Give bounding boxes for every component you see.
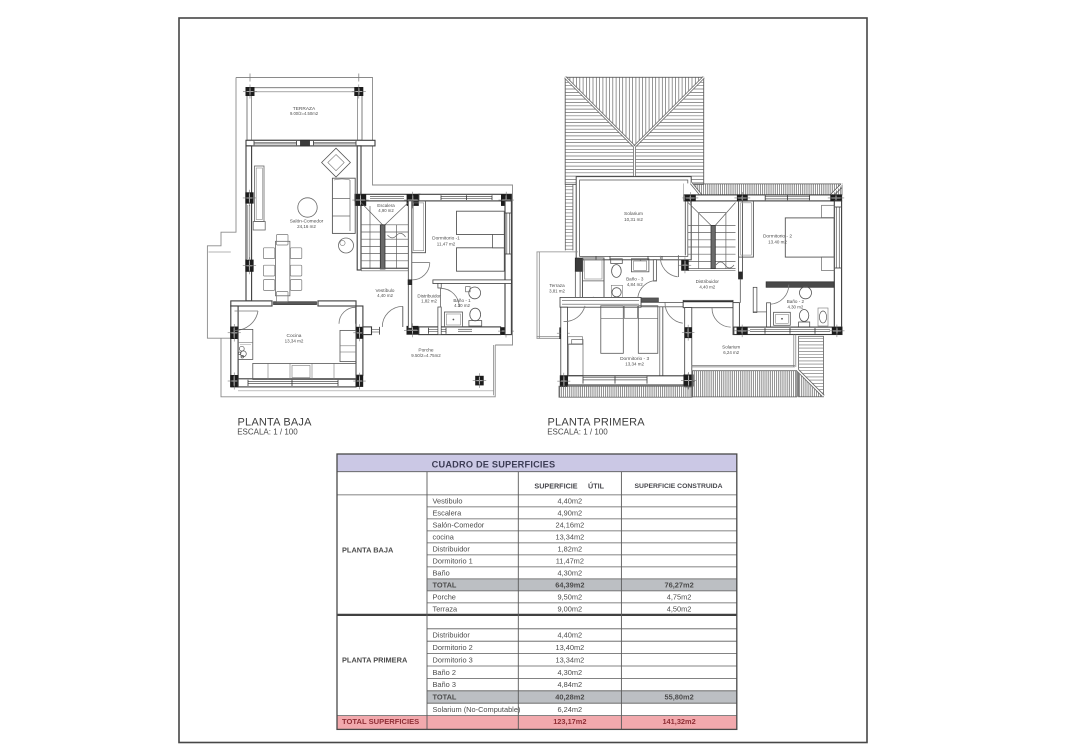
svg-text:Terraza: Terraza <box>433 605 459 614</box>
svg-text:SUPERFICIE: SUPERFICIE <box>534 482 577 491</box>
svg-text:Dormitorio 1: Dormitorio 1 <box>433 557 473 566</box>
svg-text:Solarium (No-Computable): Solarium (No-Computable) <box>433 705 521 714</box>
svg-text:13,40m2: 13,40m2 <box>555 643 584 652</box>
svg-text:11,47 m2: 11,47 m2 <box>437 242 456 247</box>
svg-text:ESCALA: 1 / 100: ESCALA: 1 / 100 <box>237 428 298 437</box>
svg-text:9.50/2=4.75m2: 9.50/2=4.75m2 <box>411 353 441 358</box>
svg-text:4,30m2: 4,30m2 <box>558 668 583 677</box>
svg-text:9,00m2: 9,00m2 <box>558 605 583 614</box>
svg-text:Distribuidor: Distribuidor <box>696 279 720 284</box>
svg-text:4,40 m2: 4,40 m2 <box>377 293 393 298</box>
svg-text:3,81 m2: 3,81 m2 <box>549 289 565 294</box>
svg-text:13,34m2: 13,34m2 <box>555 533 584 542</box>
svg-text:1,82m2: 1,82m2 <box>558 545 583 554</box>
svg-text:Distribuidor: Distribuidor <box>433 631 471 640</box>
svg-text:4,40m2: 4,40m2 <box>558 497 583 506</box>
svg-text:141,32m2: 141,32m2 <box>662 717 695 726</box>
svg-text:4,40 m2: 4,40 m2 <box>699 284 715 289</box>
svg-text:Baño 3: Baño 3 <box>433 680 456 689</box>
svg-text:13,34 m2: 13,34 m2 <box>285 339 304 344</box>
svg-text:4,40m2: 4,40m2 <box>558 631 583 640</box>
svg-text:TOTAL: TOTAL <box>433 581 457 590</box>
svg-text:Baño - 2: Baño - 2 <box>787 299 805 304</box>
svg-text:PLANTA PRIMERA: PLANTA PRIMERA <box>342 656 408 665</box>
svg-text:TOTAL: TOTAL <box>433 693 457 702</box>
svg-text:4,75m2: 4,75m2 <box>667 593 692 602</box>
svg-text:6,24m2: 6,24m2 <box>558 705 583 714</box>
svg-text:TOTAL SUPERFICIES: TOTAL SUPERFICIES <box>342 717 419 726</box>
svg-text:Vestibulo: Vestibulo <box>433 497 463 506</box>
svg-text:9.00/2=4.50m2: 9.00/2=4.50m2 <box>290 111 319 116</box>
svg-text:11,47m2: 11,47m2 <box>556 557 584 566</box>
svg-text:Terraza: Terraza <box>549 283 565 288</box>
svg-text:40,28m2: 40,28m2 <box>555 693 584 702</box>
svg-text:76,27m2: 76,27m2 <box>665 581 694 590</box>
svg-text:4.30 m2: 4.30 m2 <box>787 304 803 309</box>
svg-text:13,34 m2: 13,34 m2 <box>625 362 644 367</box>
svg-text:CUADRO DE SUPERFICIES: CUADRO DE SUPERFICIES <box>432 460 556 470</box>
svg-text:10,31 m2: 10,31 m2 <box>624 217 643 222</box>
svg-text:4,90m2: 4,90m2 <box>558 509 583 518</box>
svg-text:Salón-Comedor: Salón-Comedor <box>433 521 485 530</box>
svg-text:4,50m2: 4,50m2 <box>667 605 692 614</box>
svg-text:Dormitorio 2: Dormitorio 2 <box>433 643 473 652</box>
svg-text:Solarium: Solarium <box>722 345 740 350</box>
svg-text:ÚTIL: ÚTIL <box>588 482 605 491</box>
svg-text:cocina: cocina <box>433 533 455 542</box>
svg-text:55,80m2: 55,80m2 <box>665 693 694 702</box>
svg-text:4,84 m2: 4,84 m2 <box>627 282 643 287</box>
svg-text:Baño 2: Baño 2 <box>433 668 456 677</box>
svg-text:13,34m2: 13,34m2 <box>555 655 584 664</box>
svg-text:ESCALA: 1 / 100: ESCALA: 1 / 100 <box>547 428 608 437</box>
svg-text:Escalera: Escalera <box>433 509 463 518</box>
svg-text:9,50m2: 9,50m2 <box>558 593 583 602</box>
svg-text:13.40 m2: 13.40 m2 <box>768 240 787 245</box>
svg-text:24,16 m2: 24,16 m2 <box>297 224 316 229</box>
svg-text:Baño - 3: Baño - 3 <box>626 277 644 282</box>
svg-text:6,24 m2: 6,24 m2 <box>723 350 739 355</box>
svg-text:Porche: Porche <box>433 593 456 602</box>
svg-text:64,39m2: 64,39m2 <box>555 581 584 590</box>
svg-text:Distribuidor: Distribuidor <box>433 545 471 554</box>
svg-text:4,84m2: 4,84m2 <box>558 680 583 689</box>
svg-text:PLANTA BAJA: PLANTA BAJA <box>342 546 394 555</box>
svg-text:4,90 m2: 4,90 m2 <box>378 208 394 213</box>
svg-text:Dormitorio 3: Dormitorio 3 <box>433 655 473 664</box>
svg-text:24,16m2: 24,16m2 <box>555 521 584 530</box>
svg-text:4,30m2: 4,30m2 <box>558 569 583 578</box>
svg-text:Baño: Baño <box>433 569 450 578</box>
svg-text:123,17m2: 123,17m2 <box>553 717 586 726</box>
svg-text:4.30 m2: 4.30 m2 <box>454 303 470 308</box>
svg-text:1,82 m2: 1,82 m2 <box>421 299 437 304</box>
svg-text:SUPERFICIE CONSTRUIDA: SUPERFICIE CONSTRUIDA <box>635 483 723 490</box>
